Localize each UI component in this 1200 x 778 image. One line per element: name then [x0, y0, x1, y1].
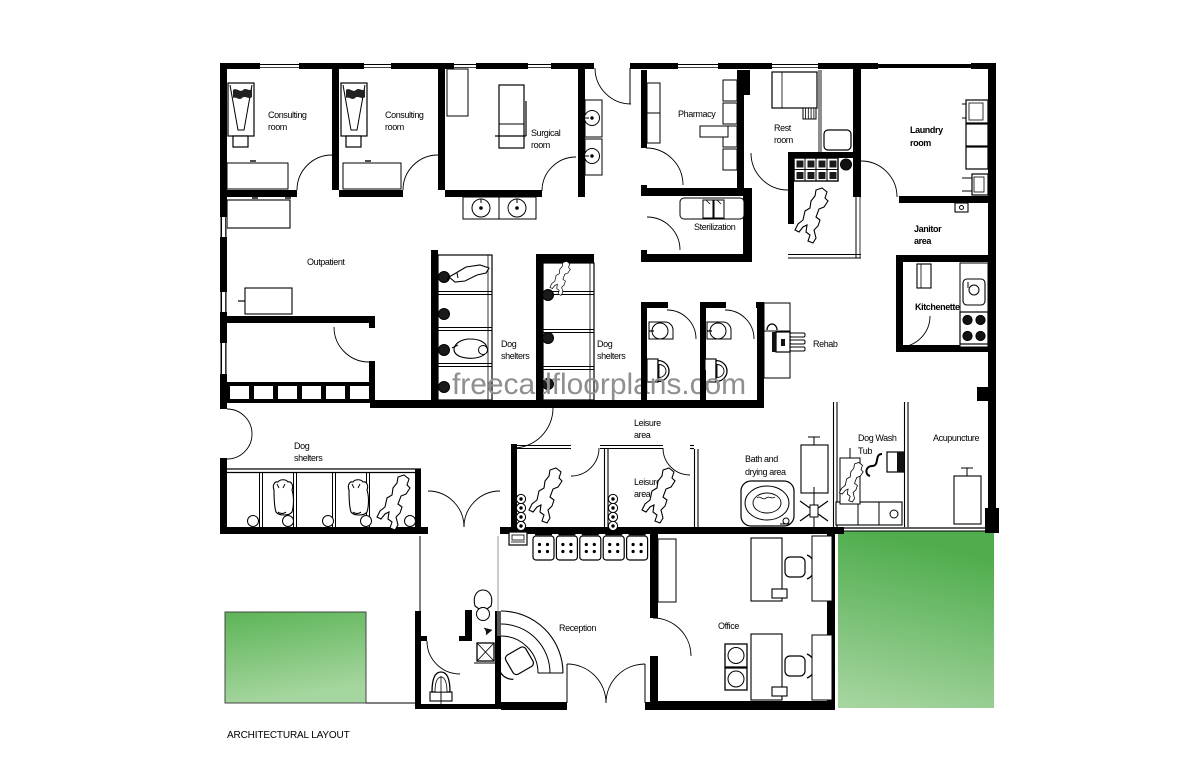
svg-text:Consulting: Consulting	[385, 110, 424, 120]
svg-text:Dog: Dog	[501, 339, 517, 349]
svg-text:Tub: Tub	[858, 446, 872, 456]
svg-text:Dog: Dog	[294, 441, 310, 451]
svg-text:Rehab: Rehab	[813, 339, 838, 349]
svg-text:area: area	[634, 430, 651, 440]
svg-text:Leisure: Leisure	[634, 418, 661, 428]
svg-text:room: room	[531, 140, 550, 150]
svg-text:drying area: drying area	[745, 467, 786, 477]
svg-text:room: room	[774, 135, 793, 145]
svg-text:Rest: Rest	[774, 123, 792, 133]
svg-text:Consulting: Consulting	[268, 110, 307, 120]
svg-text:Reception: Reception	[559, 623, 596, 633]
svg-text:Surgical: Surgical	[531, 128, 561, 138]
svg-text:area: area	[634, 489, 651, 499]
svg-text:Dog Wash: Dog Wash	[858, 433, 897, 443]
svg-text:room: room	[910, 138, 931, 148]
svg-text:Laundry: Laundry	[910, 125, 943, 135]
svg-text:area: area	[914, 236, 932, 246]
svg-text:shelters: shelters	[294, 453, 323, 463]
svg-text:shelters: shelters	[501, 351, 530, 361]
svg-text:shelters: shelters	[597, 351, 626, 361]
svg-text:Pharmacy: Pharmacy	[678, 109, 716, 119]
svg-text:Sterilization: Sterilization	[694, 222, 736, 232]
svg-text:room: room	[268, 122, 287, 132]
svg-text:ARCHITECTURAL LAYOUT: ARCHITECTURAL LAYOUT	[227, 730, 350, 741]
svg-text:Bath and: Bath and	[745, 454, 778, 464]
svg-text:Office: Office	[718, 621, 739, 631]
svg-text:Dog: Dog	[597, 339, 613, 349]
svg-text:room: room	[385, 122, 404, 132]
svg-text:Outpatient: Outpatient	[307, 257, 345, 267]
svg-text:Acupuncture: Acupuncture	[933, 433, 980, 443]
svg-text:Janitor: Janitor	[914, 224, 942, 234]
svg-text:Kitchenette: Kitchenette	[915, 302, 960, 312]
